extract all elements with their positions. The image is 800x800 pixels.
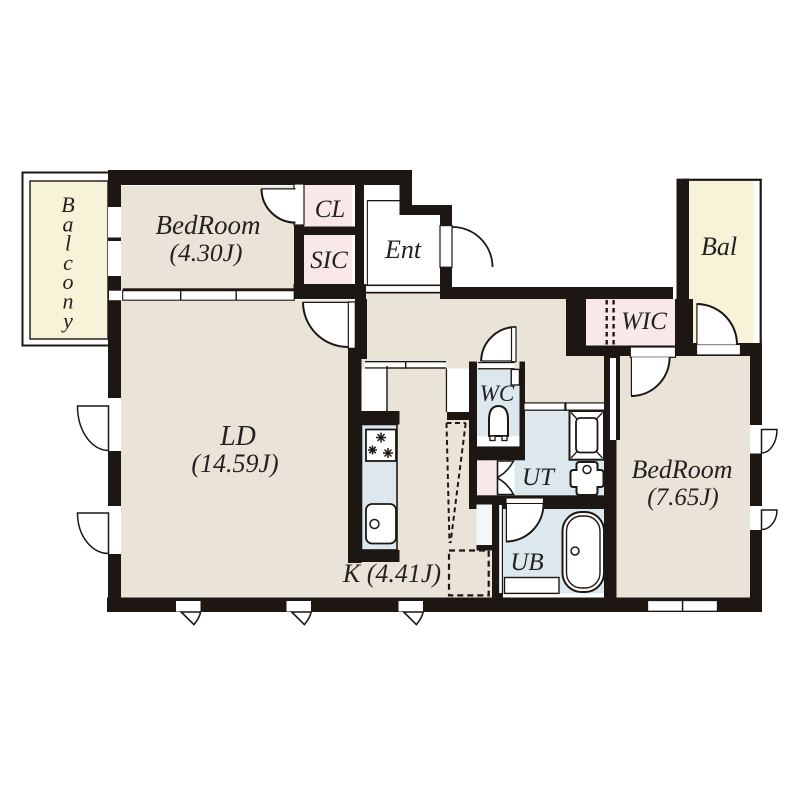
svg-text:CL: CL — [315, 196, 346, 223]
svg-text:WIC: WIC — [621, 308, 667, 335]
svg-text:Ent: Ent — [384, 235, 422, 264]
svg-text:BedRoom: BedRoom — [156, 210, 261, 240]
svg-text:(7.65J): (7.65J) — [647, 484, 719, 511]
svg-text:UT: UT — [522, 464, 556, 491]
svg-text:(4.30J): (4.30J) — [170, 238, 243, 267]
svg-text:y: y — [61, 308, 73, 333]
svg-text:Bal: Bal — [701, 232, 737, 261]
svg-text:UB: UB — [510, 549, 543, 576]
svg-text:(14.59J): (14.59J) — [191, 449, 278, 478]
svg-text:K (4.41J): K (4.41J) — [342, 559, 441, 588]
svg-text:LD: LD — [219, 421, 256, 452]
svg-text:BedRoom: BedRoom — [631, 455, 732, 484]
svg-text:WC: WC — [480, 381, 515, 406]
svg-text:SIC: SIC — [310, 247, 348, 274]
